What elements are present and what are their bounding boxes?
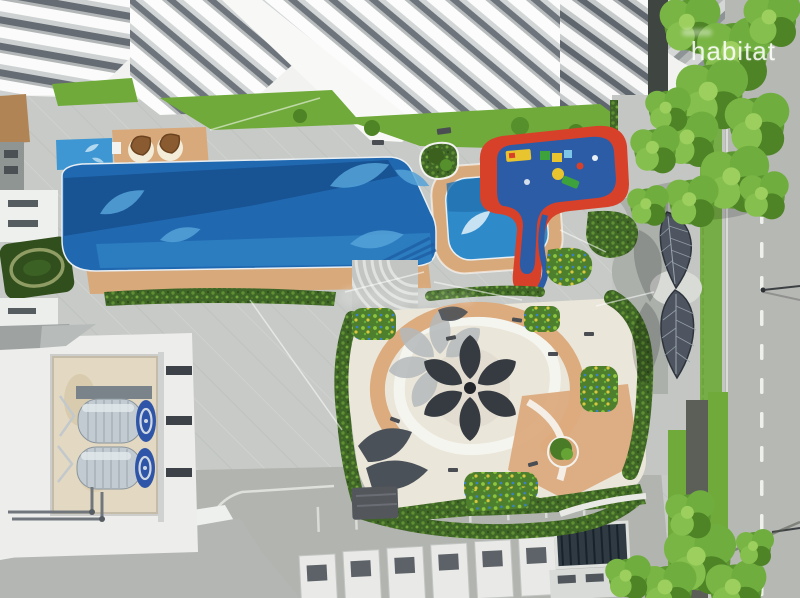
- dirt-patch: [0, 94, 30, 144]
- main-pool: [62, 155, 436, 271]
- entrance-box: [351, 486, 398, 520]
- watermark-smalltext-blur: [682, 29, 712, 36]
- water-tank-2: [77, 447, 155, 489]
- tank-support-beam: [76, 386, 152, 399]
- aerial-photo-residential-complex: habitat: [0, 0, 800, 598]
- hedge-blob: [586, 211, 638, 258]
- planter-island: [420, 143, 458, 179]
- watermark-brand: habitat: [691, 36, 776, 67]
- aerial-photo-canvas: [0, 0, 800, 598]
- water-tank-1: [78, 399, 156, 443]
- plaza-tree: [548, 437, 578, 467]
- rooftop-water-tanks: [0, 324, 198, 558]
- deck-bench: [372, 140, 384, 145]
